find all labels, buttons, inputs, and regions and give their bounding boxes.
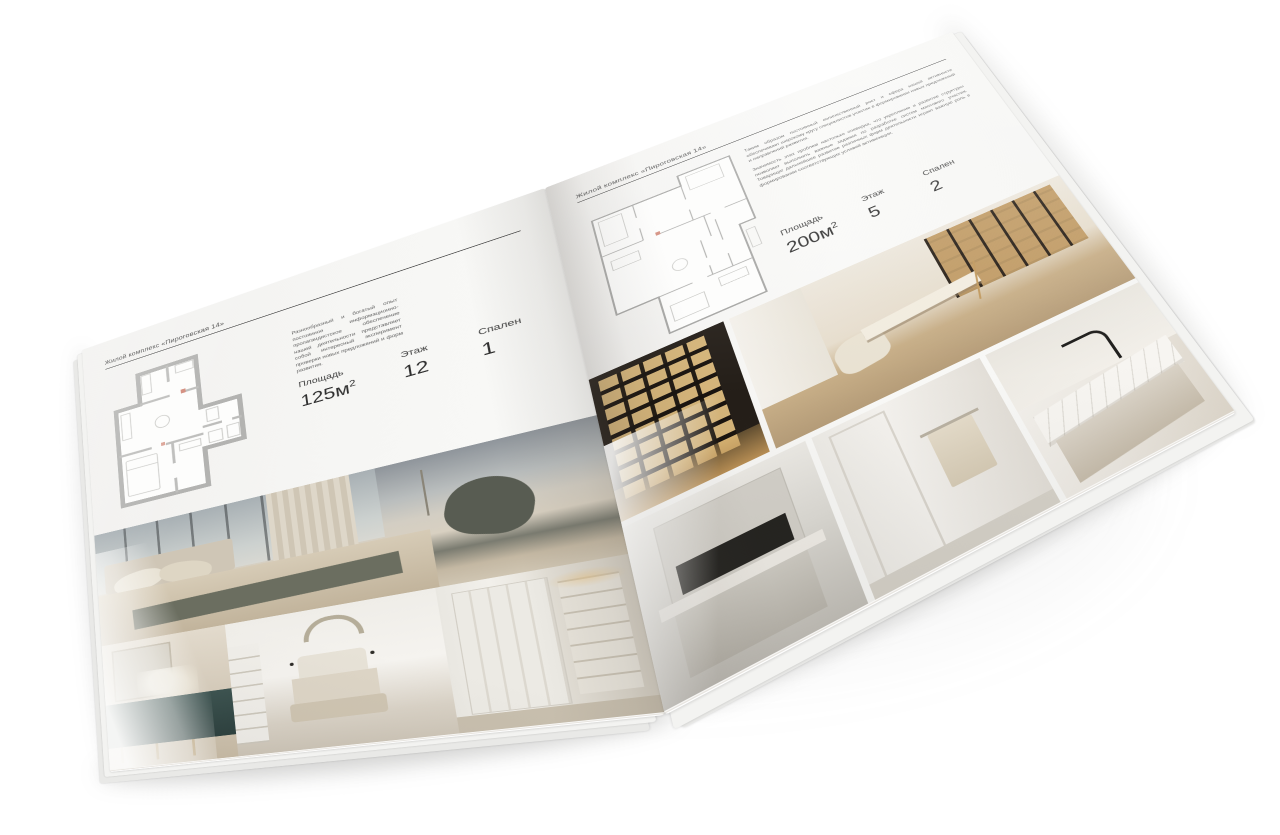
- photo-wardrobe-hall: [435, 554, 665, 736]
- towel: [926, 414, 997, 488]
- spec-bedrooms: Спален 1: [477, 316, 527, 360]
- floor-lamp: [420, 470, 430, 516]
- spec-floor: Этаж 5: [860, 187, 896, 221]
- arc-decor: [301, 611, 365, 643]
- floor-plan-125: [102, 337, 256, 514]
- sconce: [370, 650, 375, 654]
- bookshelves: [923, 184, 1088, 298]
- desk: [861, 271, 981, 341]
- sconce: [289, 662, 293, 666]
- spec-bedrooms: Спален 2: [921, 158, 967, 195]
- description-text: Разнообразный и богатый опыт постоянное …: [291, 297, 405, 375]
- shelf-niche: [558, 571, 645, 693]
- spec-value: 12: [402, 356, 432, 382]
- spec-area: Площадь 200м2: [779, 209, 842, 257]
- spec-floor: Этаж 12: [400, 344, 432, 383]
- armchair: [440, 474, 538, 535]
- brochure-photo-scene: Жилой комплекс «Пироговская 14»: [0, 0, 1280, 835]
- wardrobe-doors: [451, 577, 573, 714]
